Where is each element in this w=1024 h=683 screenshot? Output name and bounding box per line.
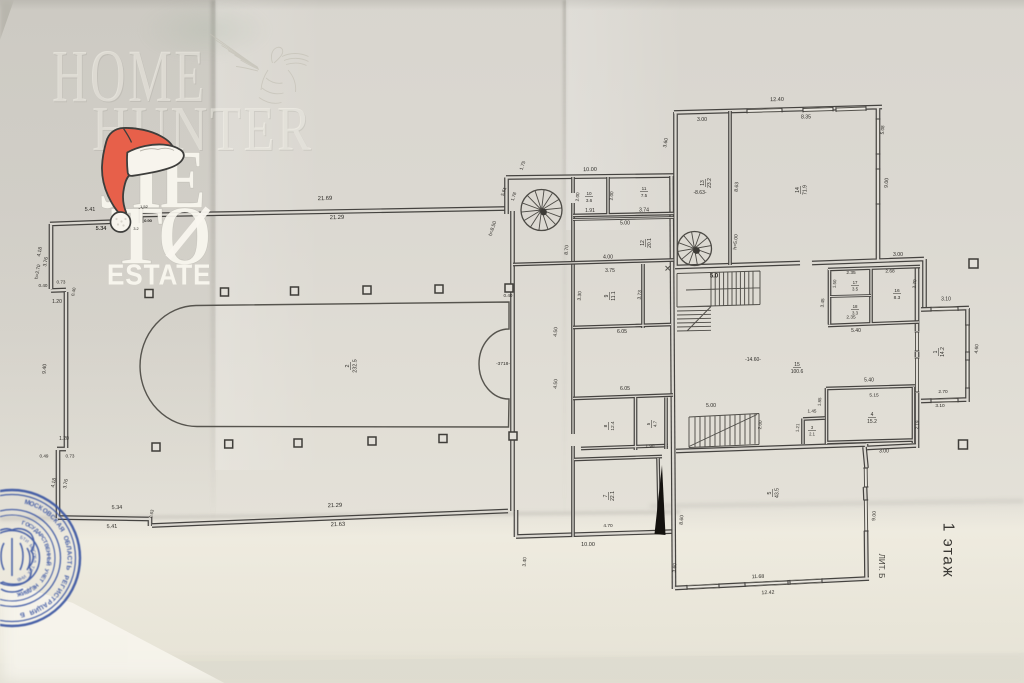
svg-text:Й: Й [44,561,52,566]
svg-text:Б: Б [19,610,25,618]
svg-text:Т: Т [65,560,72,564]
svg-text:В: В [16,577,21,583]
svg-text:Я: Я [28,607,35,615]
svg-text:Ь: Ь [64,565,72,571]
